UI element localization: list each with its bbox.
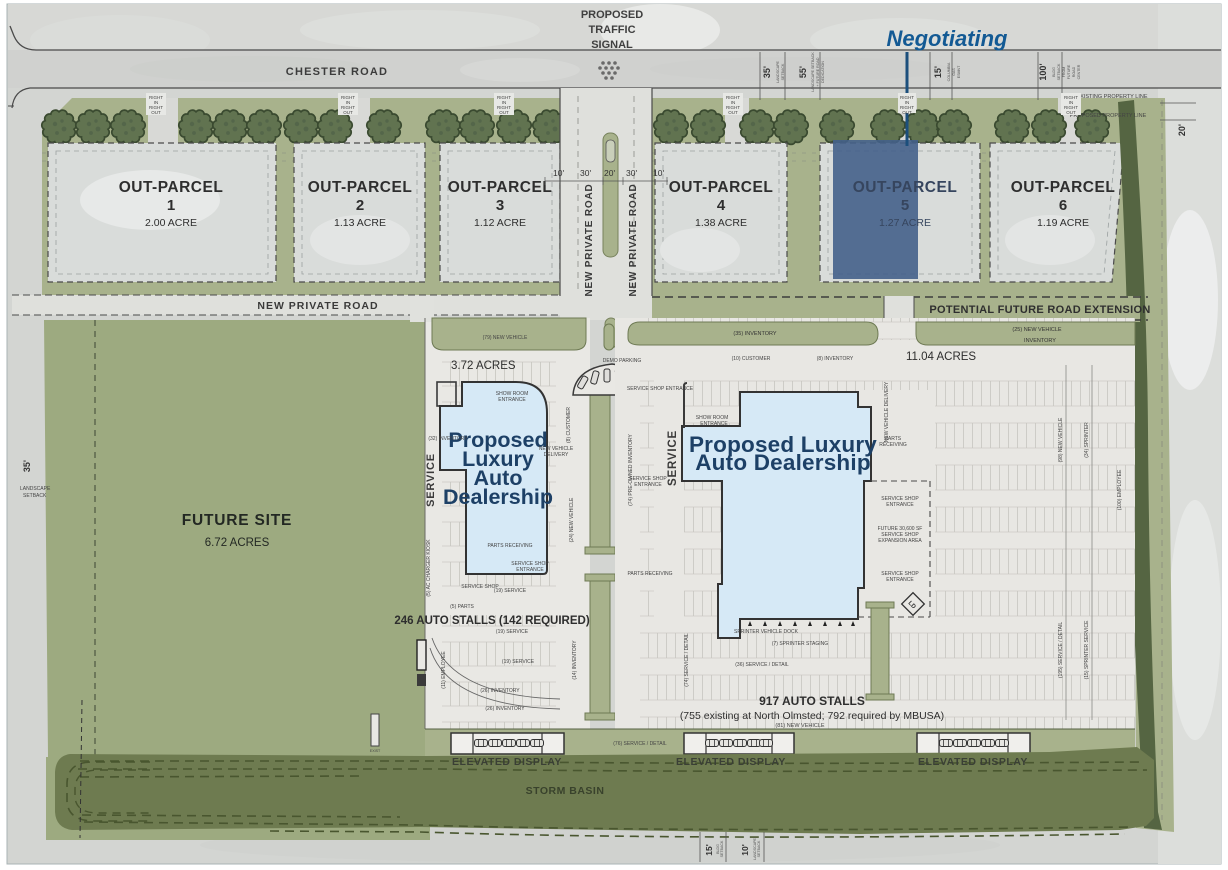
svg-text:(19) SERVICE: (19) SERVICE — [496, 629, 529, 635]
svg-text:SPRINTER VEHICLE DOCK: SPRINTER VEHICLE DOCK — [734, 629, 799, 635]
svg-text:917 AUTO STALLS: 917 AUTO STALLS — [759, 694, 865, 708]
svg-text:NEW PRIVATE ROAD: NEW PRIVATE ROAD — [628, 184, 639, 297]
svg-text:PARTS RECEIVING: PARTS RECEIVING — [487, 543, 532, 549]
svg-text:3: 3 — [496, 197, 504, 214]
svg-text:OUT: OUT — [151, 110, 161, 115]
svg-text:OUT: OUT — [902, 110, 912, 115]
svg-text:SERVICE: SERVICE — [667, 430, 679, 486]
svg-text:35': 35' — [22, 460, 32, 472]
svg-text:OUT: OUT — [728, 110, 738, 115]
svg-text:11.04 ACRES: 11.04 ACRES — [906, 351, 976, 363]
svg-text:NEW PRIVATE ROAD: NEW PRIVATE ROAD — [257, 300, 378, 312]
svg-text:OUT-PARCEL: OUT-PARCEL — [119, 179, 224, 196]
svg-text:STORM BASIN: STORM BASIN — [526, 785, 605, 797]
svg-text:COLUMBIA: COLUMBIA — [947, 62, 951, 81]
svg-text:ROAD: ROAD — [1072, 66, 1076, 77]
svg-text:(7) SPRINTER STAGING: (7) SPRINTER STAGING — [772, 641, 828, 647]
svg-text:SETBACK: SETBACK — [1057, 63, 1061, 80]
svg-text:(24) NEW VEHICLE: (24) NEW VEHICLE — [569, 497, 575, 542]
svg-text:20': 20' — [1177, 124, 1187, 136]
svg-text:ENTRANCE: ENTRANCE — [634, 482, 662, 488]
svg-text:ENTRANCE: ENTRANCE — [700, 421, 728, 427]
svg-text:100': 100' — [1038, 63, 1048, 80]
svg-text:SIGNAL: SIGNAL — [591, 39, 633, 51]
svg-text:FUTURE SITE: FUTURE SITE — [182, 512, 292, 529]
svg-text:6.72 ACRES: 6.72 ACRES — [205, 537, 270, 549]
svg-text:OUT: OUT — [343, 110, 353, 115]
svg-text:(5) AC CHARGER KIOSK: (5) AC CHARGER KIOSK — [426, 539, 432, 597]
svg-text:20': 20' — [604, 168, 615, 178]
svg-text:(755 existing at North Olmsted: (755 existing at North Olmsted; 792 requ… — [680, 710, 944, 722]
svg-text:(19) SERVICE: (19) SERVICE — [494, 588, 527, 594]
svg-text:(8) CUSTOMER: (8) CUSTOMER — [566, 407, 572, 443]
svg-text:1.27 ACRE: 1.27 ACRE — [879, 217, 931, 229]
svg-text:(76) SERVICE / DETAIL: (76) SERVICE / DETAIL — [613, 741, 667, 747]
svg-text:1.13 ACRE: 1.13 ACRE — [334, 217, 386, 229]
svg-text:(11) EMPLOYEE: (11) EMPLOYEE — [441, 651, 447, 689]
svg-text:(15) SPRINTER SERVICE: (15) SPRINTER SERVICE — [1084, 620, 1090, 679]
svg-text:(26) INVENTORY: (26) INVENTORY — [485, 706, 525, 712]
svg-text:Auto Dealership: Auto Dealership — [695, 450, 871, 475]
svg-text:OUT: OUT — [499, 110, 509, 115]
svg-text:GAS: GAS — [952, 68, 956, 76]
svg-text:FROM: FROM — [1062, 67, 1066, 78]
svg-text:DELIVERY: DELIVERY — [544, 452, 569, 458]
svg-text:ELEVATED DISPLAY: ELEVATED DISPLAY — [676, 756, 786, 768]
svg-text:LANDSCAPE: LANDSCAPE — [776, 61, 780, 83]
svg-text:(8) INVENTORY: (8) INVENTORY — [817, 356, 854, 362]
svg-text:(100) EMPLOYEE: (100) EMPLOYEE — [1117, 469, 1123, 510]
svg-text:INVENTORY: INVENTORY — [1024, 338, 1056, 344]
svg-text:TRAFFIC: TRAFFIC — [588, 24, 635, 36]
svg-text:CHESTER ROAD: CHESTER ROAD — [286, 66, 388, 78]
svg-text:3.72 ACRES: 3.72 ACRES — [451, 360, 516, 372]
svg-text:+ FUTURE ROAD: + FUTURE ROAD — [816, 57, 820, 86]
svg-text:OUT-PARCEL: OUT-PARCEL — [853, 179, 958, 196]
svg-text:OUT-PARCEL: OUT-PARCEL — [448, 179, 553, 196]
svg-text:OUT-PARCEL: OUT-PARCEL — [1011, 179, 1116, 196]
svg-text:10': 10' — [740, 844, 750, 855]
svg-text:(79) NEW VEHICLE: (79) NEW VEHICLE — [483, 335, 528, 341]
svg-text:PARTS RECEIVING: PARTS RECEIVING — [627, 571, 672, 577]
svg-text:2.00 ACRE: 2.00 ACRE — [145, 217, 197, 229]
svg-text:2: 2 — [356, 197, 364, 214]
svg-text:SETBACK: SETBACK — [720, 840, 724, 857]
svg-text:30': 30' — [580, 168, 591, 178]
svg-text:FUTURE: FUTURE — [1067, 64, 1071, 79]
svg-text:(74) SERVICE / DETAIL: (74) SERVICE / DETAIL — [684, 633, 690, 687]
svg-text:LANDSCAPE SETBACK: LANDSCAPE SETBACK — [811, 52, 815, 92]
svg-text:(26) INVENTORY: (26) INVENTORY — [480, 688, 520, 694]
svg-text:RECEIVING: RECEIVING — [879, 442, 907, 448]
svg-text:LANDSCAPE: LANDSCAPE — [20, 486, 51, 492]
svg-text:15': 15' — [704, 844, 714, 855]
svg-text:SERVICE SHOP ENTRANCE: SERVICE SHOP ENTRANCE — [627, 386, 694, 392]
svg-text:PROPOSED: PROPOSED — [581, 9, 643, 21]
svg-text:(14) INVENTORY: (14) INVENTORY — [572, 640, 578, 680]
svg-text:(19) SERVICE: (19) SERVICE — [502, 659, 535, 665]
svg-text:ENTRANCE: ENTRANCE — [516, 567, 544, 573]
svg-text:CENTER: CENTER — [1077, 64, 1081, 79]
svg-text:SETBACK: SETBACK — [23, 493, 47, 499]
svg-text:ESMNT: ESMNT — [957, 65, 961, 78]
svg-text:(10) CUSTOMER: (10) CUSTOMER — [732, 356, 771, 362]
svg-text:1: 1 — [167, 197, 175, 214]
svg-text:(74) PRE-OWNED INVENTORY: (74) PRE-OWNED INVENTORY — [628, 433, 634, 505]
svg-text:(36) SERVICE / DETAIL: (36) SERVICE / DETAIL — [735, 662, 789, 668]
svg-text:ENTRANCE: ENTRANCE — [886, 502, 914, 508]
svg-text:10': 10' — [553, 168, 564, 178]
svg-text:1.12 ACRE: 1.12 ACRE — [474, 217, 526, 229]
svg-text:OUT-PARCEL: OUT-PARCEL — [308, 179, 413, 196]
svg-text:(32) INVENTORY: (32) INVENTORY — [428, 436, 468, 442]
svg-text:DEMO PARKING: DEMO PARKING — [603, 358, 642, 364]
svg-text:PROPOSED PROPERTY LINE: PROPOSED PROPERTY LINE — [1070, 113, 1147, 119]
svg-text:6: 6 — [1059, 197, 1067, 214]
svg-text:BLDG: BLDG — [1052, 67, 1056, 77]
svg-text:SETBACK: SETBACK — [781, 63, 785, 80]
svg-text:246 AUTO STALLS (142 REQUIRED): 246 AUTO STALLS (142 REQUIRED) — [394, 615, 589, 627]
svg-text:(35) INVENTORY: (35) INVENTORY — [733, 331, 777, 337]
svg-text:35': 35' — [762, 66, 772, 78]
svg-text:1.19 ACRE: 1.19 ACRE — [1037, 217, 1089, 229]
svg-text:EXPANSION AREA: EXPANSION AREA — [878, 538, 922, 544]
svg-text:NEW VEHICLE DELIVERY: NEW VEHICLE DELIVERY — [884, 381, 890, 442]
svg-text:OUT: OUT — [1066, 110, 1076, 115]
svg-text:55': 55' — [798, 66, 808, 78]
svg-text:10': 10' — [653, 168, 664, 178]
svg-text:SETBACK: SETBACK — [757, 840, 761, 857]
svg-text:(5) PARTS: (5) PARTS — [450, 604, 474, 610]
svg-text:Negotiating: Negotiating — [887, 26, 1009, 51]
svg-text:SERVICE: SERVICE — [425, 453, 437, 507]
svg-text:EXISTING PROPERTY LINE: EXISTING PROPERTY LINE — [1076, 94, 1147, 100]
svg-text:30': 30' — [626, 168, 637, 178]
svg-text:Dealership: Dealership — [443, 485, 553, 509]
svg-text:5: 5 — [901, 197, 909, 214]
svg-text:(81) NEW VEHICLE: (81) NEW VEHICLE — [775, 723, 825, 729]
svg-text:(195) SERVICE / DETAIL: (195) SERVICE / DETAIL — [1058, 622, 1064, 678]
svg-text:DEDICATION: DEDICATION — [821, 61, 825, 83]
svg-text:15': 15' — [933, 66, 943, 78]
svg-text:ELEVATED DISPLAY: ELEVATED DISPLAY — [918, 756, 1028, 768]
svg-text:1.38 ACRE: 1.38 ACRE — [695, 217, 747, 229]
svg-text:OUT-PARCEL: OUT-PARCEL — [669, 179, 774, 196]
svg-text:4: 4 — [717, 197, 726, 214]
svg-text:ENTRANCE: ENTRANCE — [498, 397, 526, 403]
svg-text:ENTRANCE: ENTRANCE — [886, 577, 914, 583]
svg-text:NEW PRIVATE ROAD: NEW PRIVATE ROAD — [584, 184, 595, 297]
svg-text:ELEVATED DISPLAY: ELEVATED DISPLAY — [452, 756, 562, 768]
svg-text:POTENTIAL FUTURE ROAD EXTENSIO: POTENTIAL FUTURE ROAD EXTENSION — [929, 304, 1150, 316]
svg-text:(25) NEW VEHICLE: (25) NEW VEHICLE — [1012, 327, 1062, 333]
svg-text:EXIST: EXIST — [370, 749, 381, 753]
svg-text:(34) SPRINTER: (34) SPRINTER — [1084, 422, 1090, 458]
svg-text:SERVICE SHOP: SERVICE SHOP — [461, 584, 499, 590]
svg-text:(98) NEW VEHICLE: (98) NEW VEHICLE — [1058, 417, 1064, 462]
